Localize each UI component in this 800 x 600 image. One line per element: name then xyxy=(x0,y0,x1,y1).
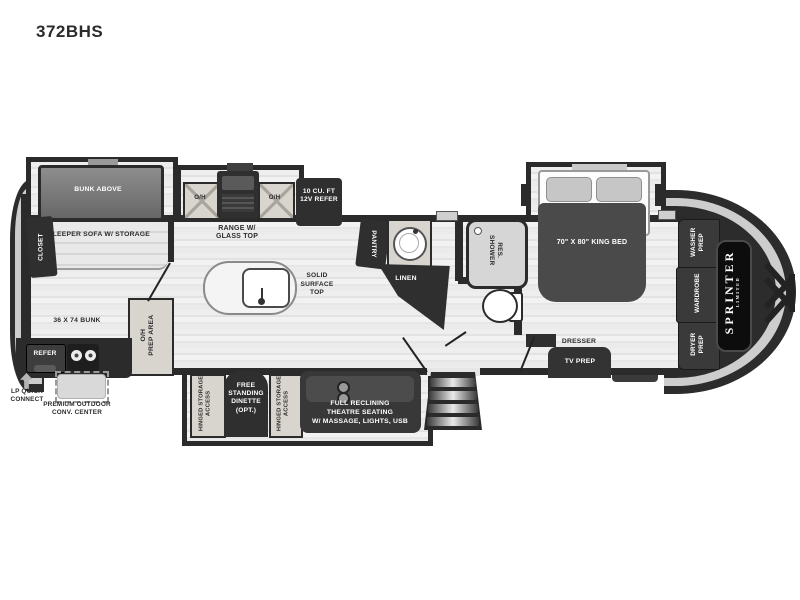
island-line2: SURFACE xyxy=(296,281,338,290)
floorplan-canvas: 372BHS BUNK ABOVE SLEEPER SOFA W/ STORAG… xyxy=(0,0,800,600)
pillow-left xyxy=(546,177,592,202)
range-vent xyxy=(227,163,253,171)
bath-faucet-icon xyxy=(413,229,418,234)
outdoor-line1: PREMIUM OUTDOOR xyxy=(42,401,112,409)
oh-prep-label: O/H PREP AREA xyxy=(140,303,156,367)
outdoor-line2: CONV. CENTER xyxy=(42,409,112,417)
tv-prep-label: TV PREP xyxy=(550,358,610,366)
range-grill-detail xyxy=(222,194,254,212)
washer-line1: WASHER xyxy=(690,220,698,264)
dresser-label: DRESSER xyxy=(554,338,604,346)
window-top-wall xyxy=(436,211,458,221)
shower-label: RES. SHOWER xyxy=(487,223,503,277)
pantry-label: PANTRY xyxy=(369,223,377,265)
lp-line1: LP QUICK xyxy=(4,388,50,396)
stair-tread-4 xyxy=(427,417,479,426)
shower-line1: RES. xyxy=(495,223,503,277)
dinette-line4: (OPT.) xyxy=(222,407,270,415)
island-faucet-base xyxy=(258,298,265,305)
theatre-line3: W/ MASSAGE, LIGHTS, USB xyxy=(296,418,424,427)
window-top-wall-right xyxy=(658,210,676,220)
dinette-line1: FREE xyxy=(222,382,270,390)
nightstand-left xyxy=(521,184,527,206)
page-title: 372BHS xyxy=(36,28,103,36)
bunk-above-label: BUNK ABOVE xyxy=(48,186,148,194)
theatre-label: FULL RECLINING THEATRE SEATING W/ MASSAG… xyxy=(296,400,424,426)
theatre-line1: FULL RECLINING xyxy=(296,400,424,409)
nightstand-right xyxy=(655,184,661,206)
king-bed-mattress xyxy=(538,203,646,302)
range-label: RANGE W/ GLASS TOP xyxy=(203,225,271,241)
refer-12v-line1: 10 CU. FT xyxy=(296,188,342,196)
toilet-bowl xyxy=(482,289,518,323)
hitch-icon xyxy=(764,262,798,324)
washer-line2: PREP xyxy=(698,220,706,264)
wardrobe-label: WARDROBE xyxy=(694,268,702,318)
prep-area-label: PREP AREA xyxy=(148,303,156,367)
dryer-prep-label: DRYER PREP xyxy=(690,322,706,366)
dinette-line3: DINETTE xyxy=(222,398,270,406)
dryer-line2: PREP xyxy=(698,322,706,366)
hinged-storage-left-label: HINGED STORAGE ACCESS xyxy=(199,375,214,431)
outdoor-refer-handle xyxy=(34,365,56,372)
shower-head-icon xyxy=(474,227,482,235)
entry-stairs xyxy=(424,372,482,430)
outdoor-dashed-box xyxy=(55,371,109,403)
king-bed-label: 70" X 80" KING BED xyxy=(540,239,644,247)
island-label: SOLID SURFACE TOP xyxy=(296,272,338,298)
island-line1: SOLID xyxy=(296,272,338,281)
hinged-right-line1: HINGED STORAGE xyxy=(277,375,284,431)
burner-right xyxy=(85,350,96,361)
closet-label: CLOSET xyxy=(37,221,45,274)
shower-line2: SHOWER xyxy=(487,223,495,277)
oh-left-label: O/H xyxy=(183,194,217,202)
outdoor-center-label: PREMIUM OUTDOOR CONV. CENTER xyxy=(42,401,112,417)
dryer-line1: DRYER xyxy=(690,322,698,366)
linen-label: LINEN xyxy=(386,275,426,283)
stair-tread-2 xyxy=(429,391,477,400)
hinged-right-line2: ACCESS xyxy=(284,375,291,431)
theatre-line2: THEATRE SEATING xyxy=(296,409,424,418)
dinette-line2: STANDING xyxy=(222,390,270,398)
hinged-storage-right-label: HINGED STORAGE ACCESS xyxy=(277,375,292,431)
island-line3: TOP xyxy=(296,289,338,298)
bath-sink-inner xyxy=(399,233,419,253)
range-top-detail xyxy=(222,176,254,190)
refer-12v-label: 10 CU. FT 12V REFER xyxy=(296,188,342,204)
hinged-left-line2: ACCESS xyxy=(206,375,213,431)
stair-tread-3 xyxy=(428,404,478,413)
oh-label: O/H xyxy=(140,303,148,367)
outdoor-refer-label: REFER xyxy=(26,350,64,358)
brand-name: SPRINTER xyxy=(723,247,735,337)
front-step-tab xyxy=(612,375,658,382)
stair-tread-1 xyxy=(430,378,476,387)
range-line1: RANGE W/ xyxy=(203,225,271,233)
range-line2: GLASS TOP xyxy=(203,233,271,241)
brand-logo: SPRINTER LIMITED xyxy=(723,247,741,337)
bunk-label: 36 X 74 BUNK xyxy=(38,317,116,325)
dinette-label: FREE STANDING DINETTE (OPT.) xyxy=(222,382,270,415)
refer-12v-line2: 12V REFER xyxy=(296,196,342,204)
washer-prep-label: WASHER PREP xyxy=(690,220,706,264)
burner-left xyxy=(71,350,82,361)
theatre-seat-back xyxy=(306,376,414,402)
pillow-right xyxy=(596,177,642,202)
bath-left-wall xyxy=(455,219,463,281)
hinged-left-line1: HINGED STORAGE xyxy=(199,375,206,431)
island-sink xyxy=(242,268,290,308)
oh-right-label: O/H xyxy=(258,194,291,202)
